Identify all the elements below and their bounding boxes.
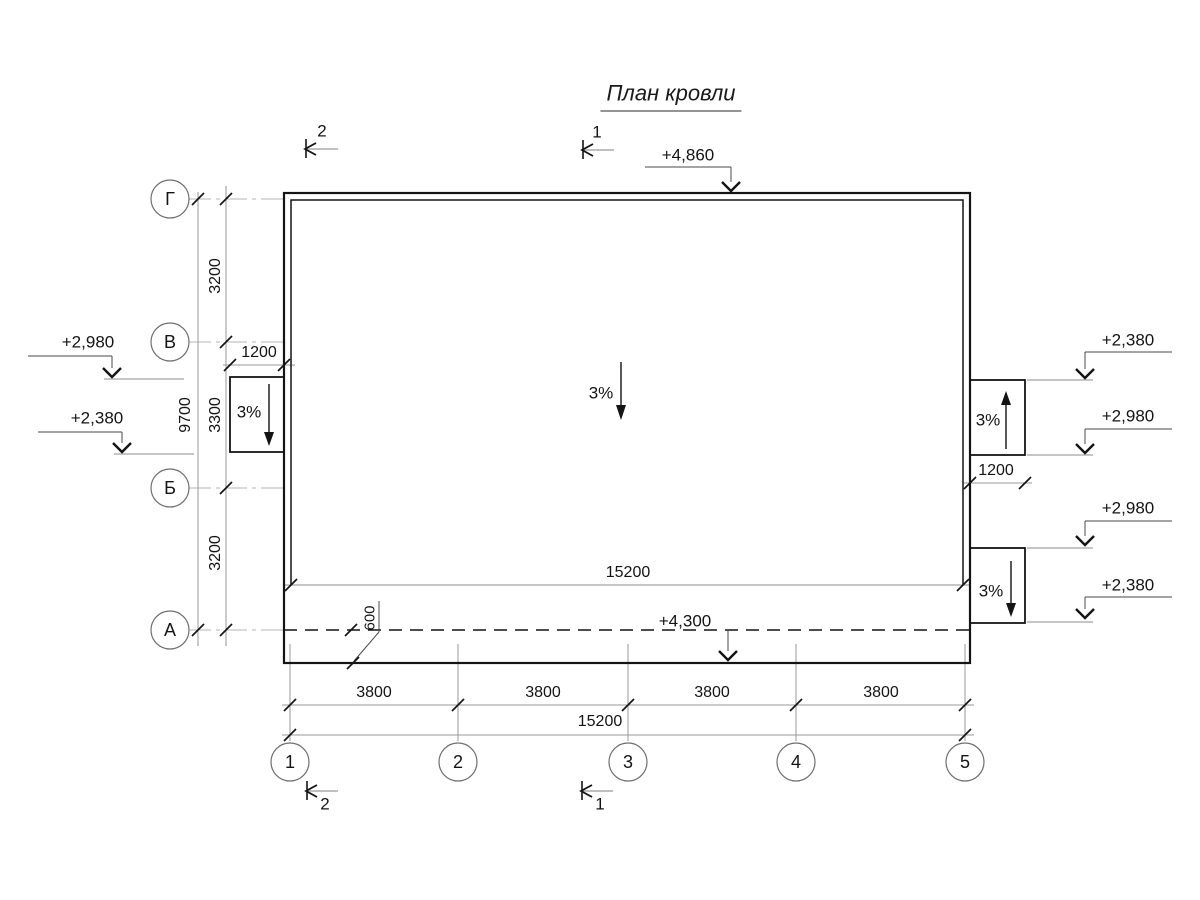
section-number-2-top: 2 (317, 123, 326, 140)
dim-row-span-2: 3300 (208, 397, 224, 433)
dim-eave-overhang: 600 (363, 605, 378, 630)
section-mark-1-top (582, 140, 614, 159)
axis-label-a: А (164, 621, 176, 639)
section-mark-2-top (305, 139, 338, 158)
section-number-1-bottom: 1 (595, 796, 604, 813)
elevation-eave: +4,300 (659, 613, 711, 630)
elevation-mark-right-4 (1027, 597, 1172, 622)
axis-label-2: 2 (453, 753, 463, 771)
dim-bay-4: 3800 (863, 685, 899, 701)
dim-bay-2: 3800 (525, 685, 561, 701)
elevation-mark-right-3 (1027, 521, 1172, 548)
roof-plan-drawing: План кровли Г В Б А 1 2 3 4 5 9700 3200 … (0, 0, 1200, 900)
slope-left-chute: 3% (237, 404, 262, 421)
dim-bay-3: 3800 (694, 685, 730, 701)
dim-chute-right-width: 1200 (978, 463, 1014, 479)
dimension-lines (198, 186, 1032, 741)
elevation-mark-left-upper (28, 356, 184, 379)
slope-right-upper-chute: 3% (976, 412, 1001, 429)
elevation-mark-right-2 (1027, 429, 1172, 455)
elevation-mark-left-lower (38, 432, 194, 454)
section-number-2-bottom: 2 (320, 796, 329, 813)
axis-label-g: Г (165, 190, 175, 208)
dim-roof-width: 15200 (606, 565, 651, 581)
axis-label-3: 3 (623, 753, 633, 771)
axis-label-1: 1 (285, 753, 295, 771)
elevation-left-lower: +2,380 (71, 410, 123, 427)
elevation-mark-right-1 (1027, 352, 1172, 380)
axis-label-5: 5 (960, 753, 970, 771)
dim-total-height: 9700 (178, 397, 194, 433)
axis-label-v: В (164, 333, 176, 351)
elevation-roof-top: +4,860 (662, 147, 714, 164)
elevation-right-4: +2,380 (1102, 577, 1154, 594)
section-number-1-top: 1 (592, 124, 601, 141)
axis-label-b: Б (164, 479, 176, 497)
elevation-right-2: +2,980 (1102, 408, 1154, 425)
roof-outline (284, 193, 970, 663)
elevation-left-upper: +2,980 (62, 334, 114, 351)
drawing-title: План кровли (600, 81, 741, 112)
slope-right-lower-chute: 3% (979, 583, 1004, 600)
elevation-mark-eave (719, 631, 737, 660)
elevation-right-3: +2,980 (1102, 500, 1154, 517)
dim-chute-left-width: 1200 (241, 345, 277, 361)
dimension-ticks (192, 193, 1031, 741)
elevation-right-1: +2,380 (1102, 332, 1154, 349)
axis-label-4: 4 (791, 753, 801, 771)
elevation-mark-roof-top (645, 167, 740, 191)
main-slope-arrow (616, 362, 626, 420)
dim-row-span-3: 3200 (208, 535, 224, 571)
axis-bubbles (151, 180, 984, 781)
dim-bay-1: 3800 (356, 685, 392, 701)
slope-main: 3% (589, 385, 614, 402)
dim-row-span-1: 3200 (208, 258, 224, 294)
dim-total-width: 15200 (578, 714, 623, 730)
